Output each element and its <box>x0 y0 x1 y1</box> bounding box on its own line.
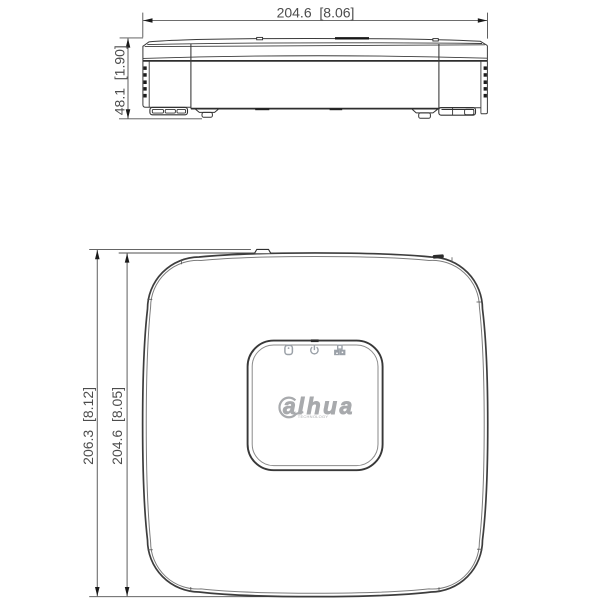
svg-text:204.6 [8.06]: 204.6 [8.06] <box>277 4 355 20</box>
svg-text:a: a <box>283 393 296 419</box>
svg-text:204.6 [8.05]: 204.6 [8.05] <box>109 387 125 465</box>
svg-text:206.3 [8.12]: 206.3 [8.12] <box>80 387 96 465</box>
svg-text:48.1 [1.90]: 48.1 [1.90] <box>112 45 128 115</box>
svg-text:TECHNOLOGY: TECHNOLOGY <box>298 414 329 419</box>
